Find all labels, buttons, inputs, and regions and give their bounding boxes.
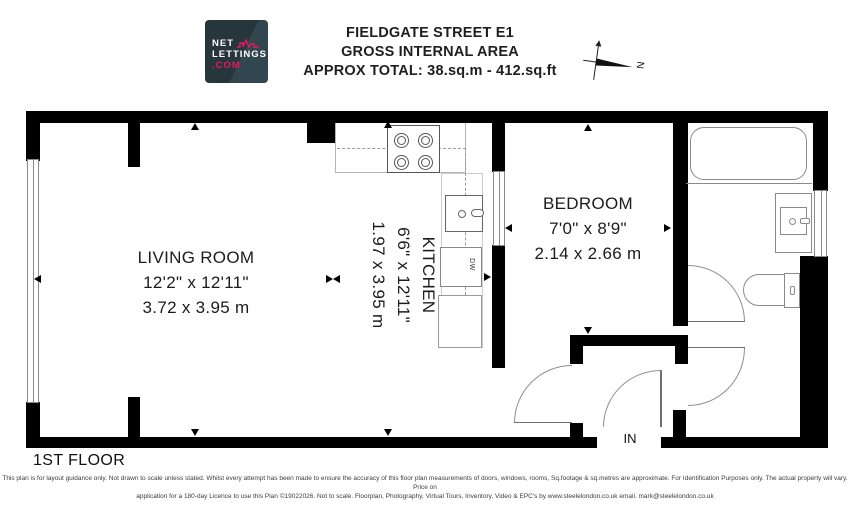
kitchen-name: KITCHEN [416, 165, 441, 385]
bathtub-platform-line [686, 183, 812, 184]
living-room-label: LIVING ROOM 12'2" x 12'11" 3.72 x 3.95 m [76, 245, 316, 320]
disclaimer-line-1: This plan is for layout guidance only. N… [0, 474, 850, 492]
toilet-bowl [743, 274, 789, 306]
sink-tap-icon [471, 209, 484, 217]
burner-icon [418, 133, 433, 148]
dim-arrow-bedroom-bottom [584, 327, 592, 334]
wall-kitchen-divider-upper [492, 111, 505, 172]
dishwasher-label: DW [468, 258, 475, 271]
bathtub [690, 127, 807, 180]
door-arc-entry [603, 370, 661, 427]
wall-left-upper [26, 111, 40, 161]
dim-arrow-living-top [191, 123, 199, 130]
wall-stub-living-bottom [128, 397, 140, 437]
door-arc-hall-living [514, 365, 572, 423]
wall-column [307, 123, 335, 143]
dim-arrow-kitchen-left [333, 275, 340, 283]
dim-arrow-bedroom-top [584, 124, 592, 131]
kitchen-imperial: 6'6" x 12'11" [391, 165, 416, 385]
kitchen-metric: 1.97 x 3.95 m [366, 165, 391, 385]
wall-bedroom-bottom [570, 335, 688, 346]
living-room-metric: 3.72 x 3.95 m [76, 295, 316, 320]
compass-n-label: N [634, 61, 646, 70]
disclaimer-line-2: application for a 180-day Licence to use… [0, 492, 850, 501]
wall-right-lower [800, 256, 828, 448]
bathroom-basin [775, 193, 812, 253]
bedroom-imperial: 7'0" x 8'9" [488, 216, 688, 241]
wall-right-upper [813, 111, 828, 191]
bedroom-metric: 2.14 x 2.66 m [488, 241, 688, 266]
living-room-name: LIVING ROOM [76, 245, 316, 270]
logo-line-net: NET [212, 38, 234, 49]
dishwasher: DW [440, 247, 482, 287]
page-title: FIELDGATE STREET E1 GROSS INTERNAL AREA … [270, 24, 590, 81]
door-leaf-hall-living [514, 422, 572, 423]
toilet-flush-icon [790, 286, 795, 295]
wall-stub-living-top [128, 123, 140, 167]
wall-top [26, 111, 828, 123]
entry-in-label: IN [608, 431, 652, 446]
skyline-icon [236, 38, 260, 49]
kitchen-label: KITCHEN 6'6" x 12'11" 1.97 x 3.95 m [363, 165, 441, 385]
dim-arrow-living-left [34, 275, 41, 283]
logo-line-lettings: LETTINGS [212, 49, 267, 60]
title-address: FIELDGATE STREET E1 [270, 24, 590, 43]
title-total: APPROX TOTAL: 38.sq.m - 412.sq.ft [270, 62, 590, 81]
wall-stub-hall-bottom [570, 423, 583, 437]
kitchen-sink [445, 195, 483, 232]
logo-line-com: .COM [212, 60, 267, 71]
basin-drain-icon [789, 218, 796, 225]
disclaimer: This plan is for layout guidance only. N… [0, 474, 850, 501]
floorplan-page: NET LETTINGS .COM FIELDGATE STREET E1 GR… [0, 0, 850, 507]
wall-bottom-left [26, 437, 597, 448]
window-bathroom-right [814, 190, 827, 257]
bedroom-label: BEDROOM 7'0" x 8'9" 2.14 x 2.66 m [488, 191, 688, 266]
logo-text: NET LETTINGS .COM [212, 38, 267, 71]
wall-stub-hall-right [675, 346, 688, 364]
door-leaf-entry [660, 370, 662, 427]
dim-arrow-kitchen-right [484, 273, 491, 281]
title-area: GROSS INTERNAL AREA [270, 43, 590, 62]
toilet-cistern [784, 273, 800, 308]
floor-name-label: 1ST FLOOR [33, 452, 125, 470]
living-room-imperial: 12'2" x 12'11" [76, 270, 316, 295]
basin-tap-icon [800, 218, 810, 224]
dim-arrow-living-right [326, 275, 333, 283]
door-arc-bathroom-inner [688, 265, 745, 322]
dim-arrow-kitchen-top [384, 121, 392, 128]
dim-arrow-living-bottom [191, 429, 199, 436]
wall-stub-bathroom-bottom [673, 410, 686, 437]
door-arc-bathroom-hall [688, 348, 745, 406]
sink-drain-icon [458, 210, 466, 218]
bedroom-name: BEDROOM [488, 191, 688, 216]
kitchen-cabinet [438, 295, 482, 348]
wall-stub-hall-left [570, 346, 583, 364]
netlettings-logo: NET LETTINGS .COM [205, 20, 268, 83]
dim-arrow-kitchen-bottom [384, 429, 392, 436]
door-leaf-bathroom-hall [688, 347, 745, 348]
burner-icon [394, 133, 409, 148]
door-leaf-bathroom-inner [688, 321, 745, 322]
compass-north-icon: N [576, 36, 652, 90]
